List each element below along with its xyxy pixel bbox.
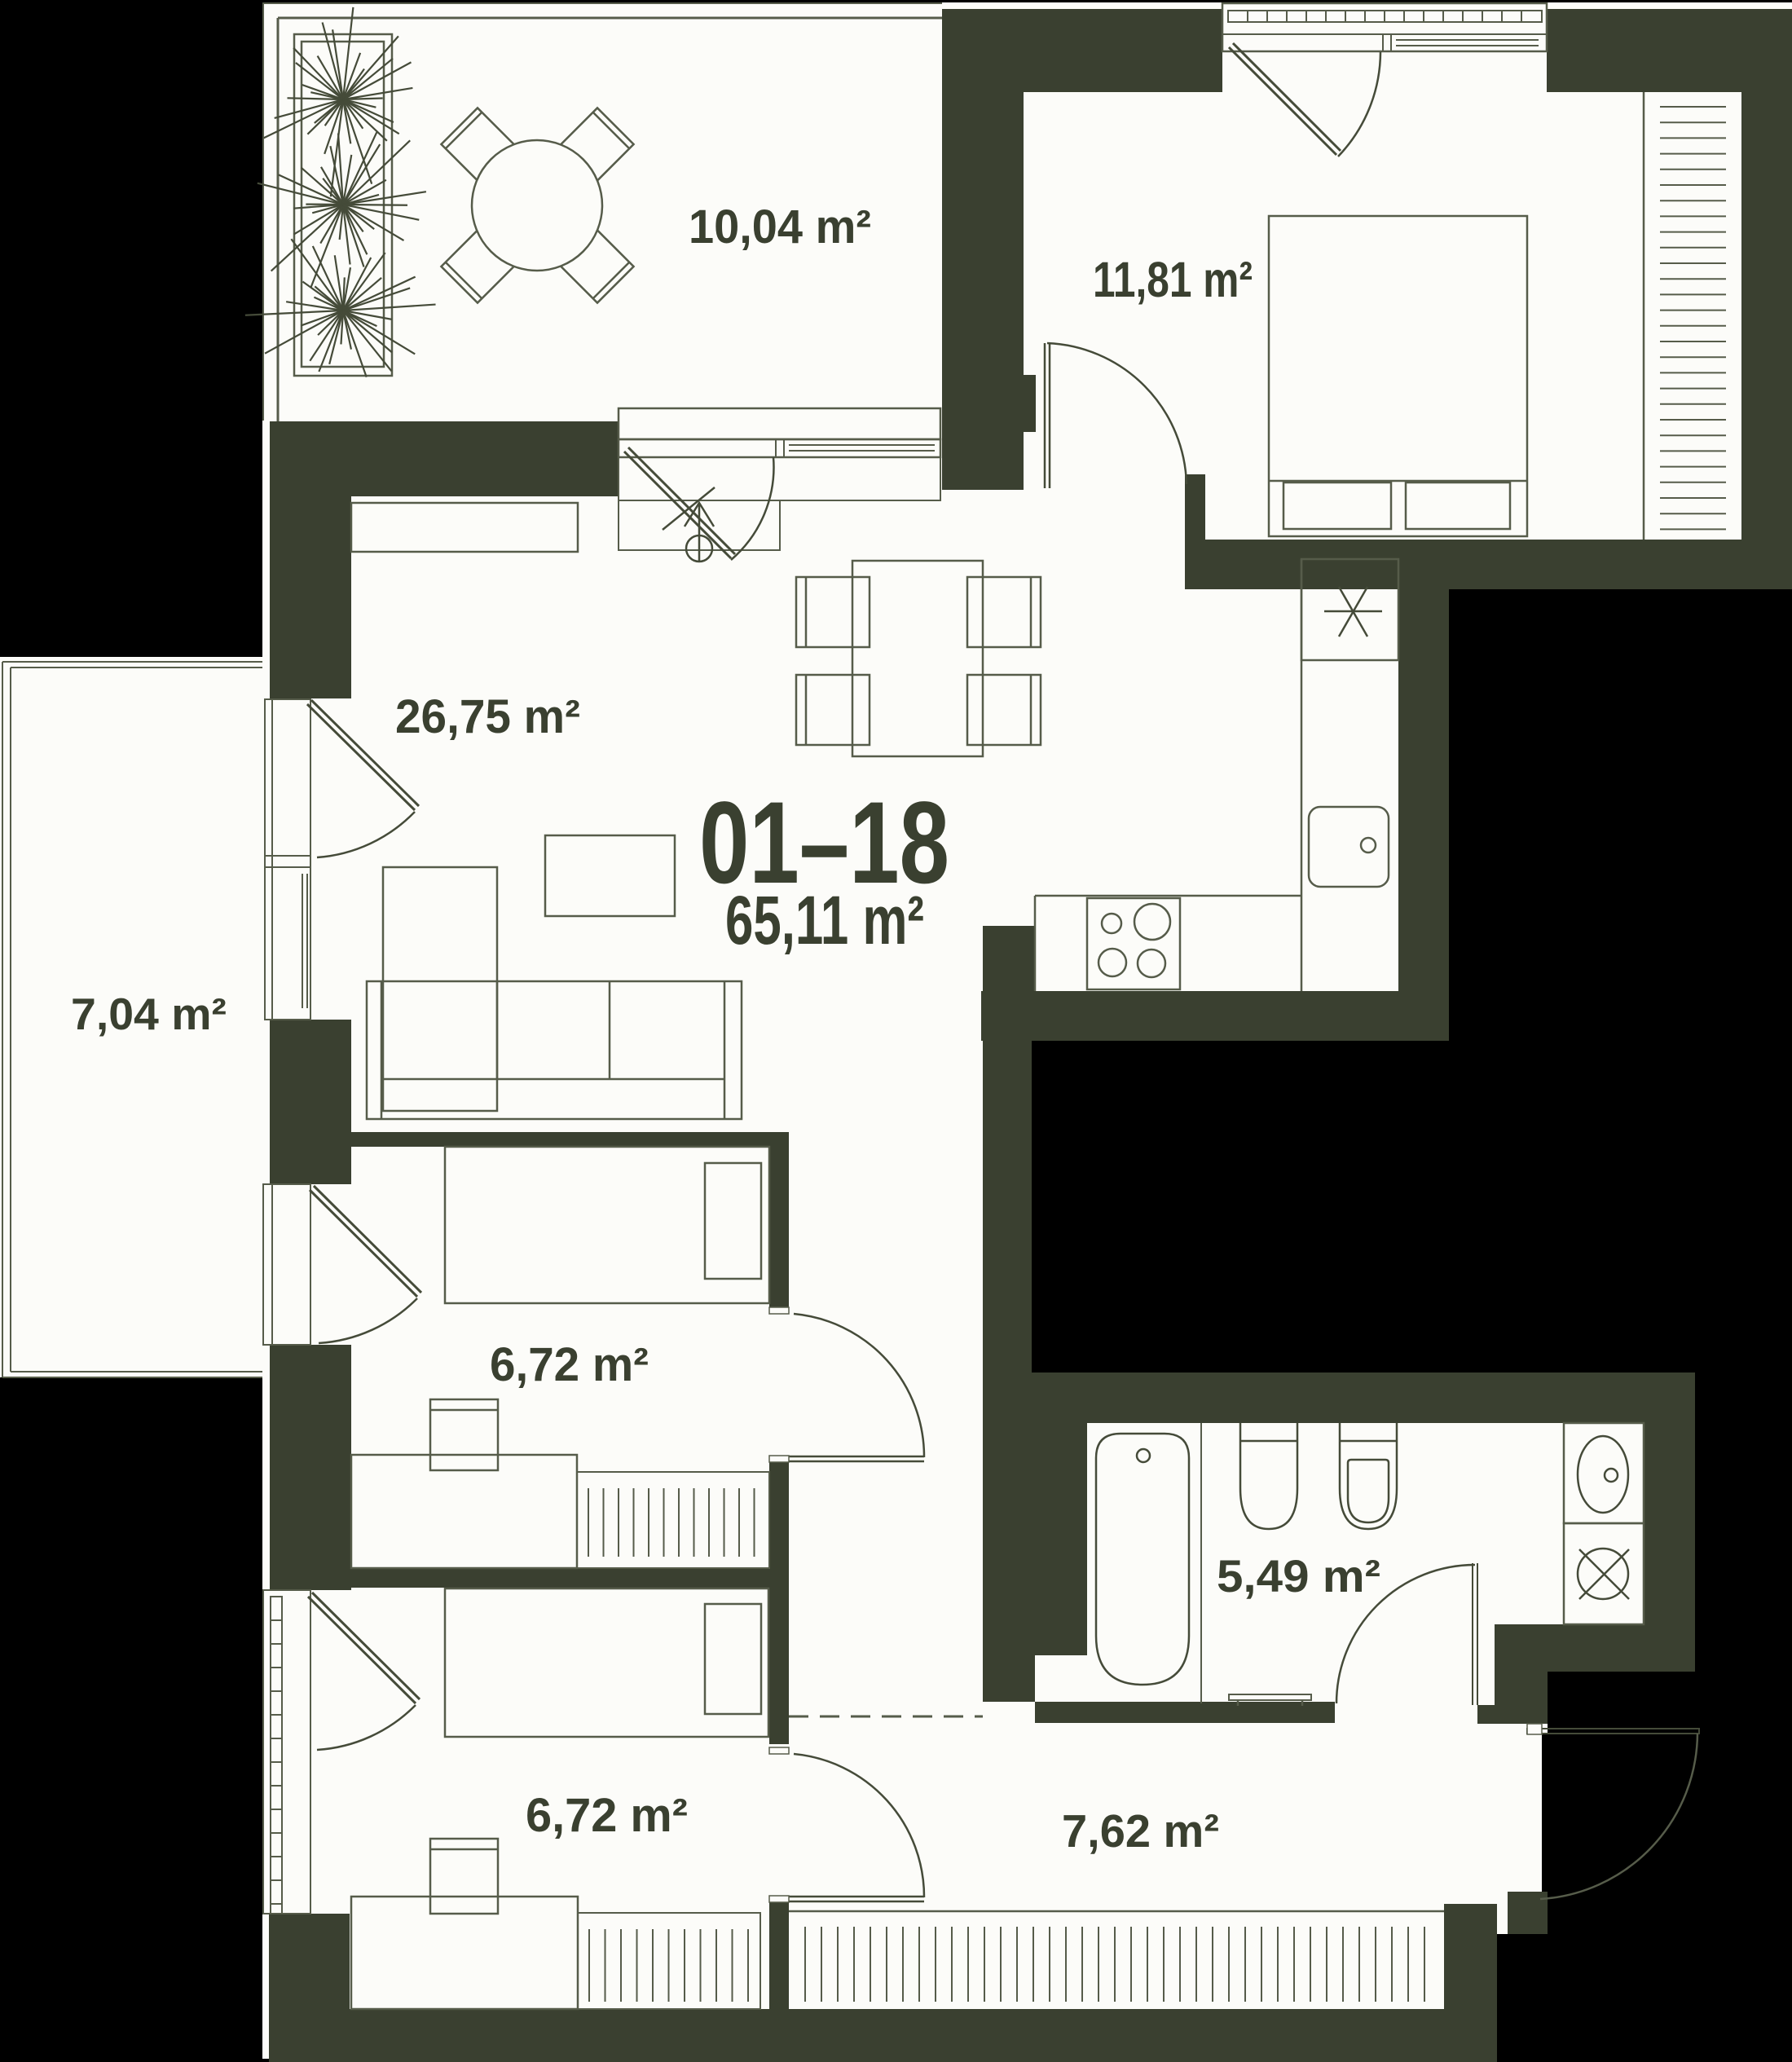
- svg-text:26,75 m²: 26,75 m²: [395, 690, 580, 743]
- svg-text:6,72 m²: 6,72 m²: [490, 1338, 649, 1391]
- svg-text:65,11 m²: 65,11 m²: [725, 882, 924, 958]
- svg-text:6,72 m²: 6,72 m²: [526, 1789, 688, 1842]
- svg-text:7,62 m²: 7,62 m²: [1062, 1805, 1219, 1857]
- svg-text:5,49 m²: 5,49 m²: [1217, 1550, 1380, 1602]
- svg-text:10,04 m²: 10,04 m²: [689, 200, 871, 253]
- svg-text:11,81 m²: 11,81 m²: [1093, 252, 1253, 307]
- svg-text:7,04 m²: 7,04 m²: [71, 989, 227, 1039]
